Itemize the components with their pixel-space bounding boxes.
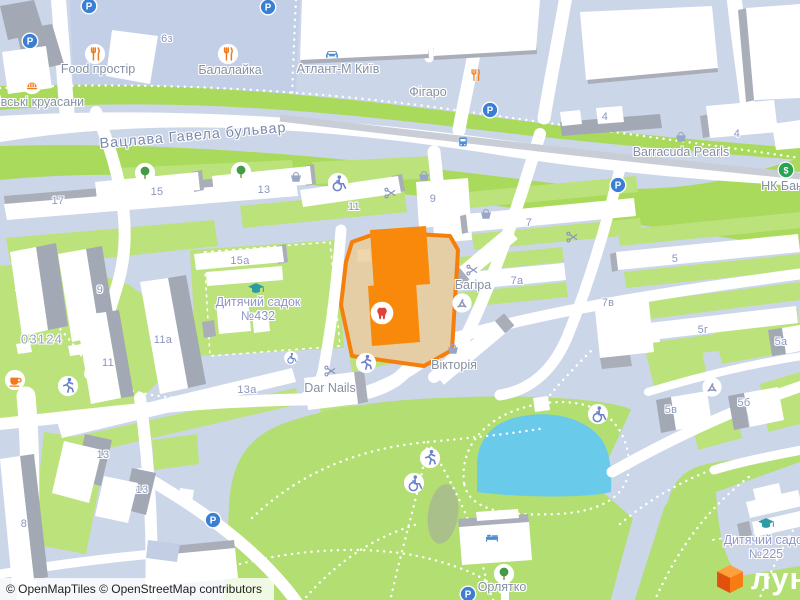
- car-dealer-icon: [324, 45, 341, 62]
- house-number: 11: [102, 357, 114, 369]
- house-number: 5г: [698, 324, 709, 336]
- hairdresser-scissors-icon: [383, 186, 398, 201]
- house-number: 7а: [511, 275, 524, 287]
- lun-logo: лун: [717, 565, 800, 593]
- house-number: 11: [348, 201, 360, 213]
- house-number: 6з: [161, 33, 173, 45]
- poi-label: Атлант-М Київ: [297, 62, 380, 76]
- lun-cube-icon: [717, 565, 743, 593]
- house-number: 5б: [737, 397, 750, 409]
- hotel-bed-icon: [484, 529, 501, 546]
- hairdresser-scissors-icon: [323, 364, 338, 379]
- attribution-bar[interactable]: © OpenMapTiles © OpenStreetMap contribut…: [0, 578, 274, 600]
- attribution-text[interactable]: © OpenMapTiles © OpenStreetMap contribut…: [6, 582, 262, 596]
- bus-stop-icon: [457, 136, 470, 149]
- shop-basket-icon: [288, 169, 304, 185]
- house-number: 5в: [665, 404, 678, 416]
- parking-icon: [204, 511, 222, 529]
- house-number: 4: [602, 111, 608, 123]
- pedestrian-icon: [355, 352, 377, 374]
- poi-label: Орлятко: [478, 580, 527, 594]
- parking-icon: [21, 32, 39, 50]
- restaurant-icon: [217, 43, 239, 65]
- restaurant-icon: [468, 68, 483, 83]
- poi-label: Фігаро: [409, 85, 446, 99]
- poi-label: івські круасани: [0, 95, 84, 109]
- house-number: 9: [97, 284, 103, 296]
- shop-basket-icon: [445, 341, 461, 357]
- map-overlay: Вацлава Гавела бульварFood простірБалала…: [0, 0, 800, 600]
- parking-icon: [459, 585, 477, 600]
- parking-icon: [481, 101, 499, 119]
- street-label: Вацлава Гавела бульвар: [99, 120, 287, 152]
- lun-logo-text: лун: [751, 565, 800, 593]
- house-number: 4: [734, 128, 740, 140]
- poi-label: Вікторія: [431, 358, 477, 372]
- shop-basket-icon: [416, 168, 432, 184]
- dental-clinic-tooth-icon: [370, 301, 394, 325]
- poi-label: Балалайка: [198, 63, 261, 77]
- school-label: Дитячий садок №225: [718, 533, 800, 561]
- pedestrian-icon: [57, 375, 79, 397]
- wheelchair-accessible-icon: [284, 351, 299, 366]
- hairdresser-scissors-icon: [465, 263, 480, 278]
- parking-icon: [609, 176, 627, 194]
- house-number: 11а: [154, 334, 172, 346]
- house-number: 7в: [602, 297, 615, 309]
- house-number: 8: [21, 518, 27, 530]
- house-number: 13: [136, 484, 149, 496]
- hairdresser-scissors-icon: [565, 230, 580, 245]
- shop-basket-icon: [673, 129, 689, 145]
- tree-icon: [134, 162, 156, 184]
- wheelchair-accessible-icon: [327, 172, 349, 194]
- wheelchair-accessible-icon: [403, 472, 425, 494]
- house-number: 13: [97, 449, 110, 461]
- house-number: 13: [258, 184, 271, 196]
- recycling-icon: [702, 377, 723, 398]
- house-number: 7: [526, 217, 532, 229]
- house-number: 15а: [230, 255, 249, 267]
- poi-label: Barracuda Pearls: [633, 145, 730, 159]
- house-number: 5а: [775, 336, 788, 348]
- wheelchair-accessible-icon: [587, 403, 609, 425]
- bakery-icon: [21, 73, 43, 95]
- parking-icon: [80, 0, 98, 15]
- house-number: 17: [52, 195, 65, 207]
- bank-dollar-icon: [777, 161, 795, 179]
- tree-icon: [230, 161, 252, 183]
- house-number: 15: [151, 186, 164, 198]
- house-number: 13а: [237, 384, 256, 396]
- kindergarten-cap-icon: [757, 515, 776, 534]
- poi-label: Dar Nails: [304, 381, 355, 395]
- pedestrian-icon: [419, 447, 441, 469]
- shop-basket-icon: [478, 206, 494, 222]
- map-viewport[interactable]: P $: [0, 0, 800, 600]
- house-number: 5: [672, 253, 678, 265]
- recycling-icon: [452, 293, 473, 314]
- poi-label: Food простір: [61, 62, 135, 76]
- parking-icon: [259, 0, 277, 16]
- district-label: 03124: [21, 332, 63, 347]
- house-number: 9: [430, 193, 436, 205]
- school-label: Дитячий садок №432: [215, 295, 301, 323]
- cafe-cup-icon: [4, 369, 26, 391]
- poi-label: НК Бан: [761, 179, 800, 193]
- poi-label: Багіра: [455, 278, 491, 292]
